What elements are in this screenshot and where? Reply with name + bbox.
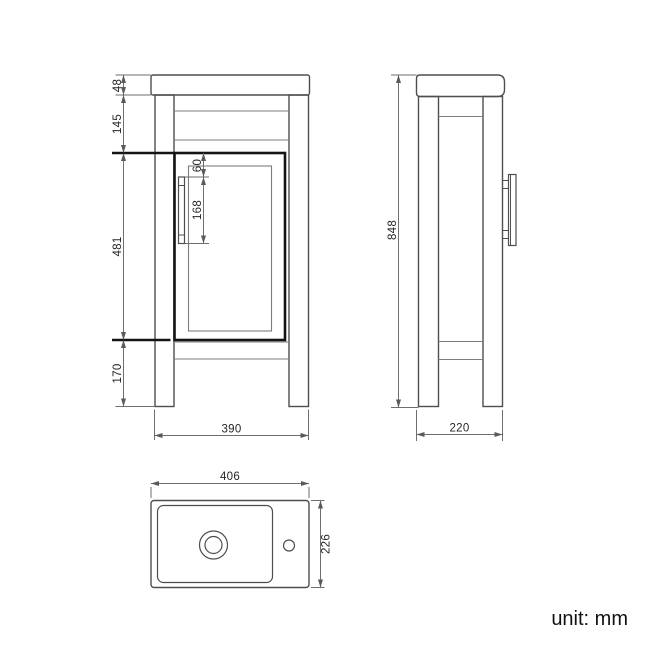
front-door-panel: [189, 166, 272, 331]
basin-drain-outer-circle: [200, 531, 228, 559]
basin-tap-hole: [284, 540, 295, 551]
front-right-leg: [289, 95, 309, 407]
side-countertop: [417, 75, 505, 97]
front-countertop: [151, 75, 310, 95]
dim-label-basin-depth: 226: [321, 534, 333, 554]
dim-label-side-height: 848: [387, 220, 399, 240]
dim-label-handle-offset: 60: [192, 159, 204, 172]
side-left-leg: [419, 97, 439, 407]
front-door-handle-brackets: [179, 186, 185, 236]
technical-drawing-canvas: 48 145 481 170 60 168 390 848: [0, 0, 650, 650]
basin-width-dim-group: [151, 481, 309, 498]
side-view: [417, 75, 517, 407]
dim-label-upper-section: 145: [112, 114, 124, 134]
dim-label-door-section: 481: [112, 236, 124, 256]
basin-width-ext-lines: [151, 487, 309, 498]
front-view: [151, 75, 310, 407]
side-handle-bottom-bracket: [503, 231, 509, 239]
side-height-dim-group: [391, 75, 419, 408]
basin-top-view: [151, 501, 309, 588]
side-height-ticks: [391, 75, 419, 408]
basin-bowl: [158, 506, 273, 583]
side-handle-top-bracket: [503, 181, 509, 189]
dim-label-countertop-thickness: 48: [112, 79, 124, 92]
side-handle-bar: [509, 175, 517, 246]
basin-drain-inner-circle: [205, 537, 222, 554]
front-door: [175, 153, 286, 340]
side-stretcher-lines: [439, 342, 484, 360]
dim-label-basin-width: 406: [220, 471, 240, 483]
dim-label-leg-section: 170: [112, 363, 124, 383]
front-door-handle: [179, 177, 185, 244]
front-bottom-rail-lines: [174, 342, 289, 359]
dim-label-handle-length: 168: [192, 200, 204, 220]
unit-label: unit: mm: [551, 608, 628, 630]
side-right-leg: [483, 97, 503, 407]
front-apron-lines: [174, 111, 289, 140]
front-left-leg: [155, 95, 174, 407]
basin-outer-rim: [151, 501, 309, 588]
dim-label-front-width: 390: [221, 424, 241, 436]
dim-label-side-depth: 220: [449, 423, 469, 435]
